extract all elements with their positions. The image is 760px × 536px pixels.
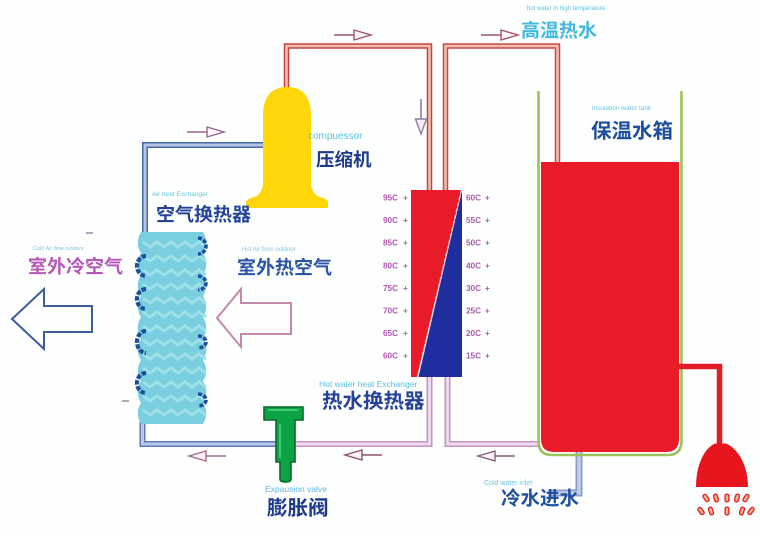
svg-text:+: + xyxy=(485,329,490,338)
svg-text:compuessor: compuessor xyxy=(308,131,363,142)
svg-text:+: + xyxy=(485,216,490,225)
svg-text:55C: 55C xyxy=(466,216,481,225)
svg-text:Cold Air flow outdoor: Cold Air flow outdoor xyxy=(33,246,84,252)
svg-text:90C: 90C xyxy=(383,216,398,225)
svg-text:85C: 85C xyxy=(383,239,398,248)
svg-text:80C: 80C xyxy=(383,261,398,270)
svg-text:70C: 70C xyxy=(383,307,398,316)
svg-text:+: + xyxy=(403,329,408,338)
svg-text:+: + xyxy=(485,352,490,361)
svg-text:insulation water tank: insulation water tank xyxy=(592,105,652,112)
svg-text:30C: 30C xyxy=(466,284,481,293)
svg-text:Hot water heat Exchanger: Hot water heat Exchanger xyxy=(319,379,417,389)
svg-text:+: + xyxy=(485,284,490,293)
svg-text:+: + xyxy=(403,216,408,225)
svg-text:60C: 60C xyxy=(383,352,398,361)
svg-text:+: + xyxy=(403,307,408,316)
svg-text:Air heat Exchanger: Air heat Exchanger xyxy=(152,191,209,198)
svg-text:+: + xyxy=(403,284,408,293)
svg-text:+: + xyxy=(403,261,408,270)
svg-text:+: + xyxy=(485,194,490,203)
svg-text:40C: 40C xyxy=(466,261,481,270)
svg-text:75C: 75C xyxy=(383,284,398,293)
svg-text:65C: 65C xyxy=(383,329,398,338)
svg-text:Hot Air from outdoor: Hot Air from outdoor xyxy=(242,247,296,253)
svg-text:Cold water inlet: Cold water inlet xyxy=(484,480,532,487)
svg-text:20C: 20C xyxy=(466,329,481,338)
svg-text:25C: 25C xyxy=(466,307,481,316)
svg-text:95C: 95C xyxy=(383,194,398,203)
svg-text:15C: 15C xyxy=(466,352,481,361)
svg-text:+: + xyxy=(485,239,490,248)
svg-text:+: + xyxy=(485,261,490,270)
svg-text:+: + xyxy=(403,239,408,248)
svg-text:+: + xyxy=(403,194,408,203)
svg-text:hot water in high temperature: hot water in high temperature xyxy=(527,6,606,12)
svg-text:+: + xyxy=(403,352,408,361)
svg-text:Expausion valve: Expausion valve xyxy=(265,484,327,494)
svg-text:50C: 50C xyxy=(466,239,481,248)
svg-text:+: + xyxy=(485,307,490,316)
svg-text:60C: 60C xyxy=(466,194,481,203)
